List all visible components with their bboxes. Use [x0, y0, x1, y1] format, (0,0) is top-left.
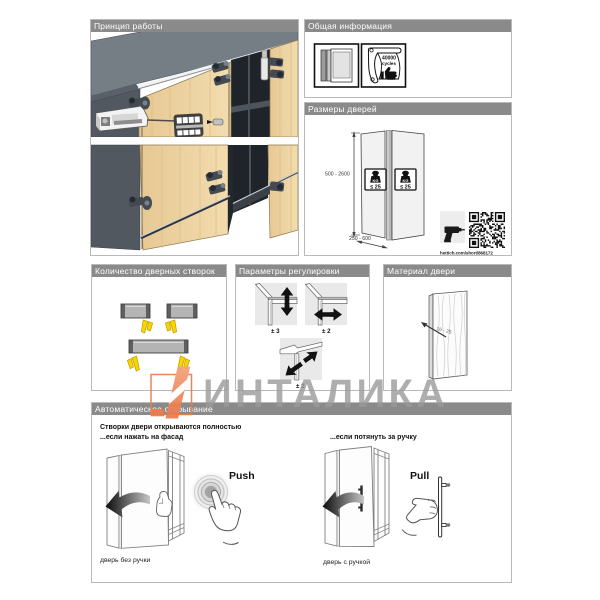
svg-text:дверь без ручки: дверь без ручки — [100, 556, 151, 564]
svg-text:Створки двери открываются полн: Створки двери открываются полностью — [100, 424, 241, 431]
svg-text:Push: Push — [229, 470, 255, 482]
svg-text:...если потянуть за ручку: ...если потянуть за ручку — [330, 434, 417, 441]
svg-text:KG: KG — [403, 178, 409, 183]
svg-text:± 3: ± 3 — [271, 328, 280, 335]
svg-text:500 - 2600: 500 - 2600 — [325, 172, 350, 178]
svg-text:± 2: ± 2 — [322, 328, 331, 335]
svg-text:cycles: cycles — [382, 61, 396, 66]
svg-text:Pull: Pull — [410, 470, 429, 482]
svg-text:...если нажать на фасад: ...если нажать на фасад — [100, 434, 184, 441]
svg-text:KG: KG — [373, 178, 379, 183]
svg-text:250 - 600: 250 - 600 — [349, 236, 371, 242]
svg-text:≤ 25: ≤ 25 — [370, 185, 381, 191]
svg-text:≤ 25: ≤ 25 — [400, 185, 411, 191]
svg-text:дверь с ручкой: дверь с ручкой — [323, 558, 370, 566]
svg-text:hettich.com/short/868172: hettich.com/short/868172 — [440, 251, 493, 256]
